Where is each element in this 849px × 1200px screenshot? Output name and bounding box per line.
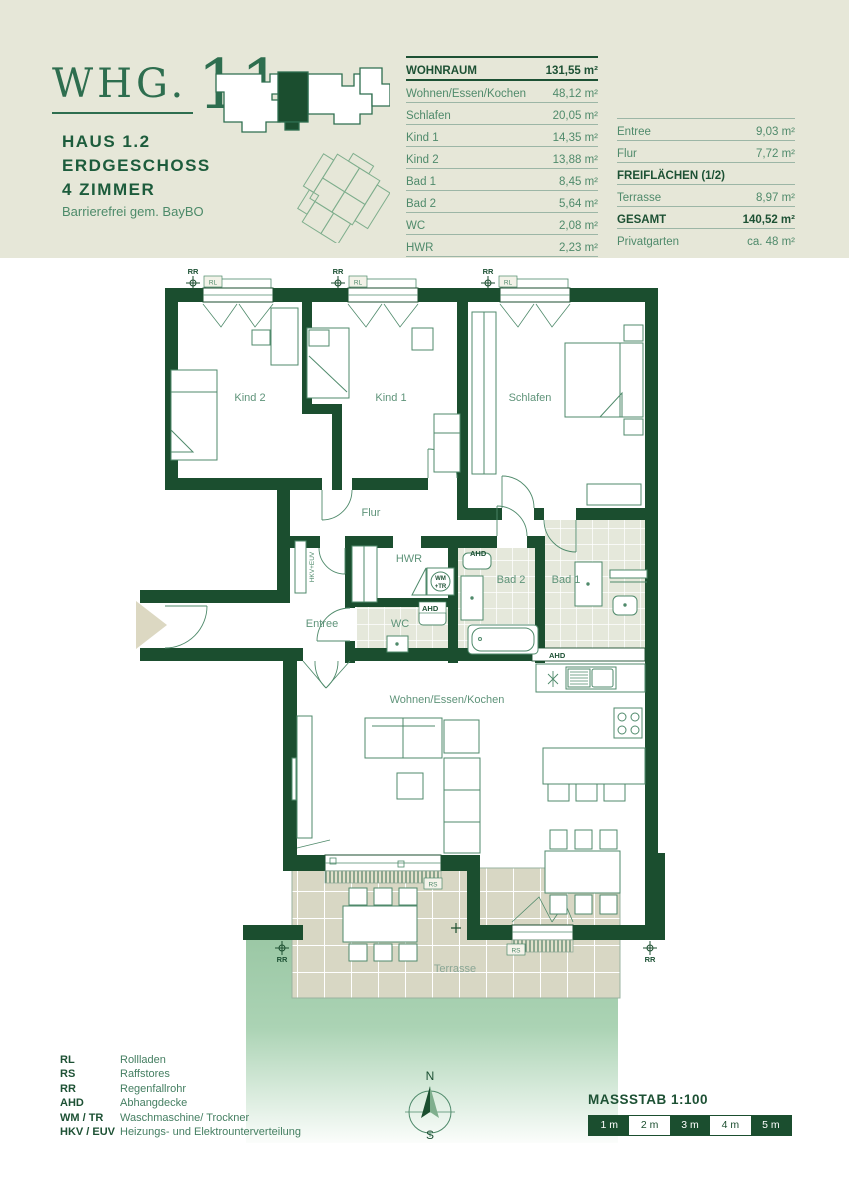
entrance-arrow-icon <box>136 601 167 649</box>
legend-row: AHDAbhangdecke <box>60 1096 301 1110</box>
room-label-terrasse: Terrasse <box>434 963 476 975</box>
room-label-bad1: Bad 1 <box>552 574 581 586</box>
room-label-entree: Entree <box>306 618 338 630</box>
svg-text:RR: RR <box>188 267 199 276</box>
legend-desc: Rollladen <box>120 1053 166 1067</box>
hkv-euv-cabinet: HKV+EUV <box>295 541 316 593</box>
bad2-vanity <box>461 576 483 620</box>
scale-segment: 4 m <box>710 1116 750 1135</box>
scale-bar: 1 m 2 m 3 m 4 m 5 m <box>588 1115 792 1136</box>
kind2-bed <box>171 370 217 460</box>
svg-text:RS: RS <box>511 948 521 955</box>
room-label-wohnen: Wohnen/Essen/Kochen <box>390 694 505 706</box>
schlafen-bed <box>565 343 643 417</box>
scale-segment: 5 m <box>751 1116 791 1135</box>
stool <box>576 784 597 801</box>
room-label-wc: WC <box>391 618 409 630</box>
armchair <box>444 720 479 753</box>
legend-row: RLRollladen <box>60 1053 301 1067</box>
svg-text:AHD: AHD <box>470 549 487 558</box>
legend-abbr: RL <box>60 1053 120 1067</box>
svg-text:AHD: AHD <box>422 604 439 613</box>
room-label-hwr: HWR <box>396 553 422 565</box>
schlafen-nightstand <box>624 325 643 341</box>
legend-abbr: WM / TR <box>60 1111 120 1125</box>
room-label-bad2: Bad 2 <box>497 574 526 586</box>
compass-south: S <box>426 1128 434 1142</box>
legend-row: RSRaffstores <box>60 1067 301 1081</box>
legend-row: RRRegenfallrohr <box>60 1082 301 1096</box>
legend-row: HKV / EUVHeizungs- und Elektrounterverte… <box>60 1125 301 1139</box>
stool <box>604 784 625 801</box>
scale-title: MASSSTAB 1:100 <box>588 1092 708 1107</box>
stove <box>614 708 642 738</box>
schlafen-wardrobe <box>472 312 496 474</box>
schlafen-bench <box>587 484 641 505</box>
room-label-schlafen: Schlafen <box>509 392 552 404</box>
legend-desc: Heizungs- und Elektrounterverteilung <box>120 1125 301 1139</box>
legend-desc: Regenfallrohr <box>120 1082 186 1096</box>
bad2-bathtub <box>468 625 538 654</box>
kind1-bed <box>307 328 349 398</box>
svg-text:RR: RR <box>483 267 494 276</box>
svg-text:RL: RL <box>209 280 218 287</box>
legend-desc: Raffstores <box>120 1067 170 1081</box>
scale-segment: 3 m <box>670 1116 710 1135</box>
svg-text:RR: RR <box>333 267 344 276</box>
svg-text:RL: RL <box>504 280 513 287</box>
hwr-shelf <box>352 546 377 602</box>
wm-label: WM <box>435 576 446 582</box>
stool <box>548 784 569 801</box>
coffee-table <box>397 773 423 799</box>
sofa <box>365 718 442 758</box>
kind1-desk <box>412 328 433 350</box>
legend-abbr: RR <box>60 1082 120 1096</box>
legend: RLRollladen RSRaffstores RRRegenfallrohr… <box>60 1053 301 1139</box>
room-label-kind2: Kind 2 <box>234 392 265 404</box>
kind1-dresser <box>434 414 460 472</box>
ahd-label: AHD <box>549 651 566 660</box>
floor-plan: AHD <box>0 0 849 1200</box>
kind2-wardrobe <box>271 308 298 365</box>
ahd-strip: AHD <box>532 648 645 661</box>
kitchen-counter <box>536 664 645 692</box>
schlafen-nightstand <box>624 419 643 435</box>
window-fold-lines <box>203 304 570 327</box>
chaise <box>444 758 480 853</box>
svg-text:RL: RL <box>354 280 363 287</box>
legend-abbr: HKV / EUV <box>60 1125 120 1139</box>
room-label-kind1: Kind 1 <box>375 392 406 404</box>
legend-desc: Abhangdecke <box>120 1096 187 1110</box>
legend-desc: Waschmaschine/ Trockner <box>120 1111 249 1125</box>
room-label-flur: Flur <box>362 507 381 519</box>
svg-text:RR: RR <box>645 955 656 964</box>
kitchen-island <box>543 748 645 784</box>
scale-segment: 2 m <box>629 1116 669 1135</box>
ironing-board-icon <box>412 568 426 595</box>
kind2-desk <box>252 330 270 345</box>
terrace-dining-set <box>343 888 417 961</box>
scale-segment: 1 m <box>589 1116 629 1135</box>
legend-abbr: AHD <box>60 1096 120 1110</box>
dining-set <box>545 830 620 914</box>
legend-row: WM / TRWaschmaschine/ Trockner <box>60 1111 301 1125</box>
bad1-toilet <box>613 596 637 615</box>
wc-toilet <box>387 636 408 652</box>
tr-label: +TR <box>435 584 447 590</box>
svg-text:RR: RR <box>277 955 288 964</box>
legend-abbr: RS <box>60 1067 120 1081</box>
hkv-euv-label: HKV+EUV <box>309 551 316 582</box>
svg-text:RS: RS <box>428 882 438 889</box>
compass-north: N <box>426 1069 435 1083</box>
